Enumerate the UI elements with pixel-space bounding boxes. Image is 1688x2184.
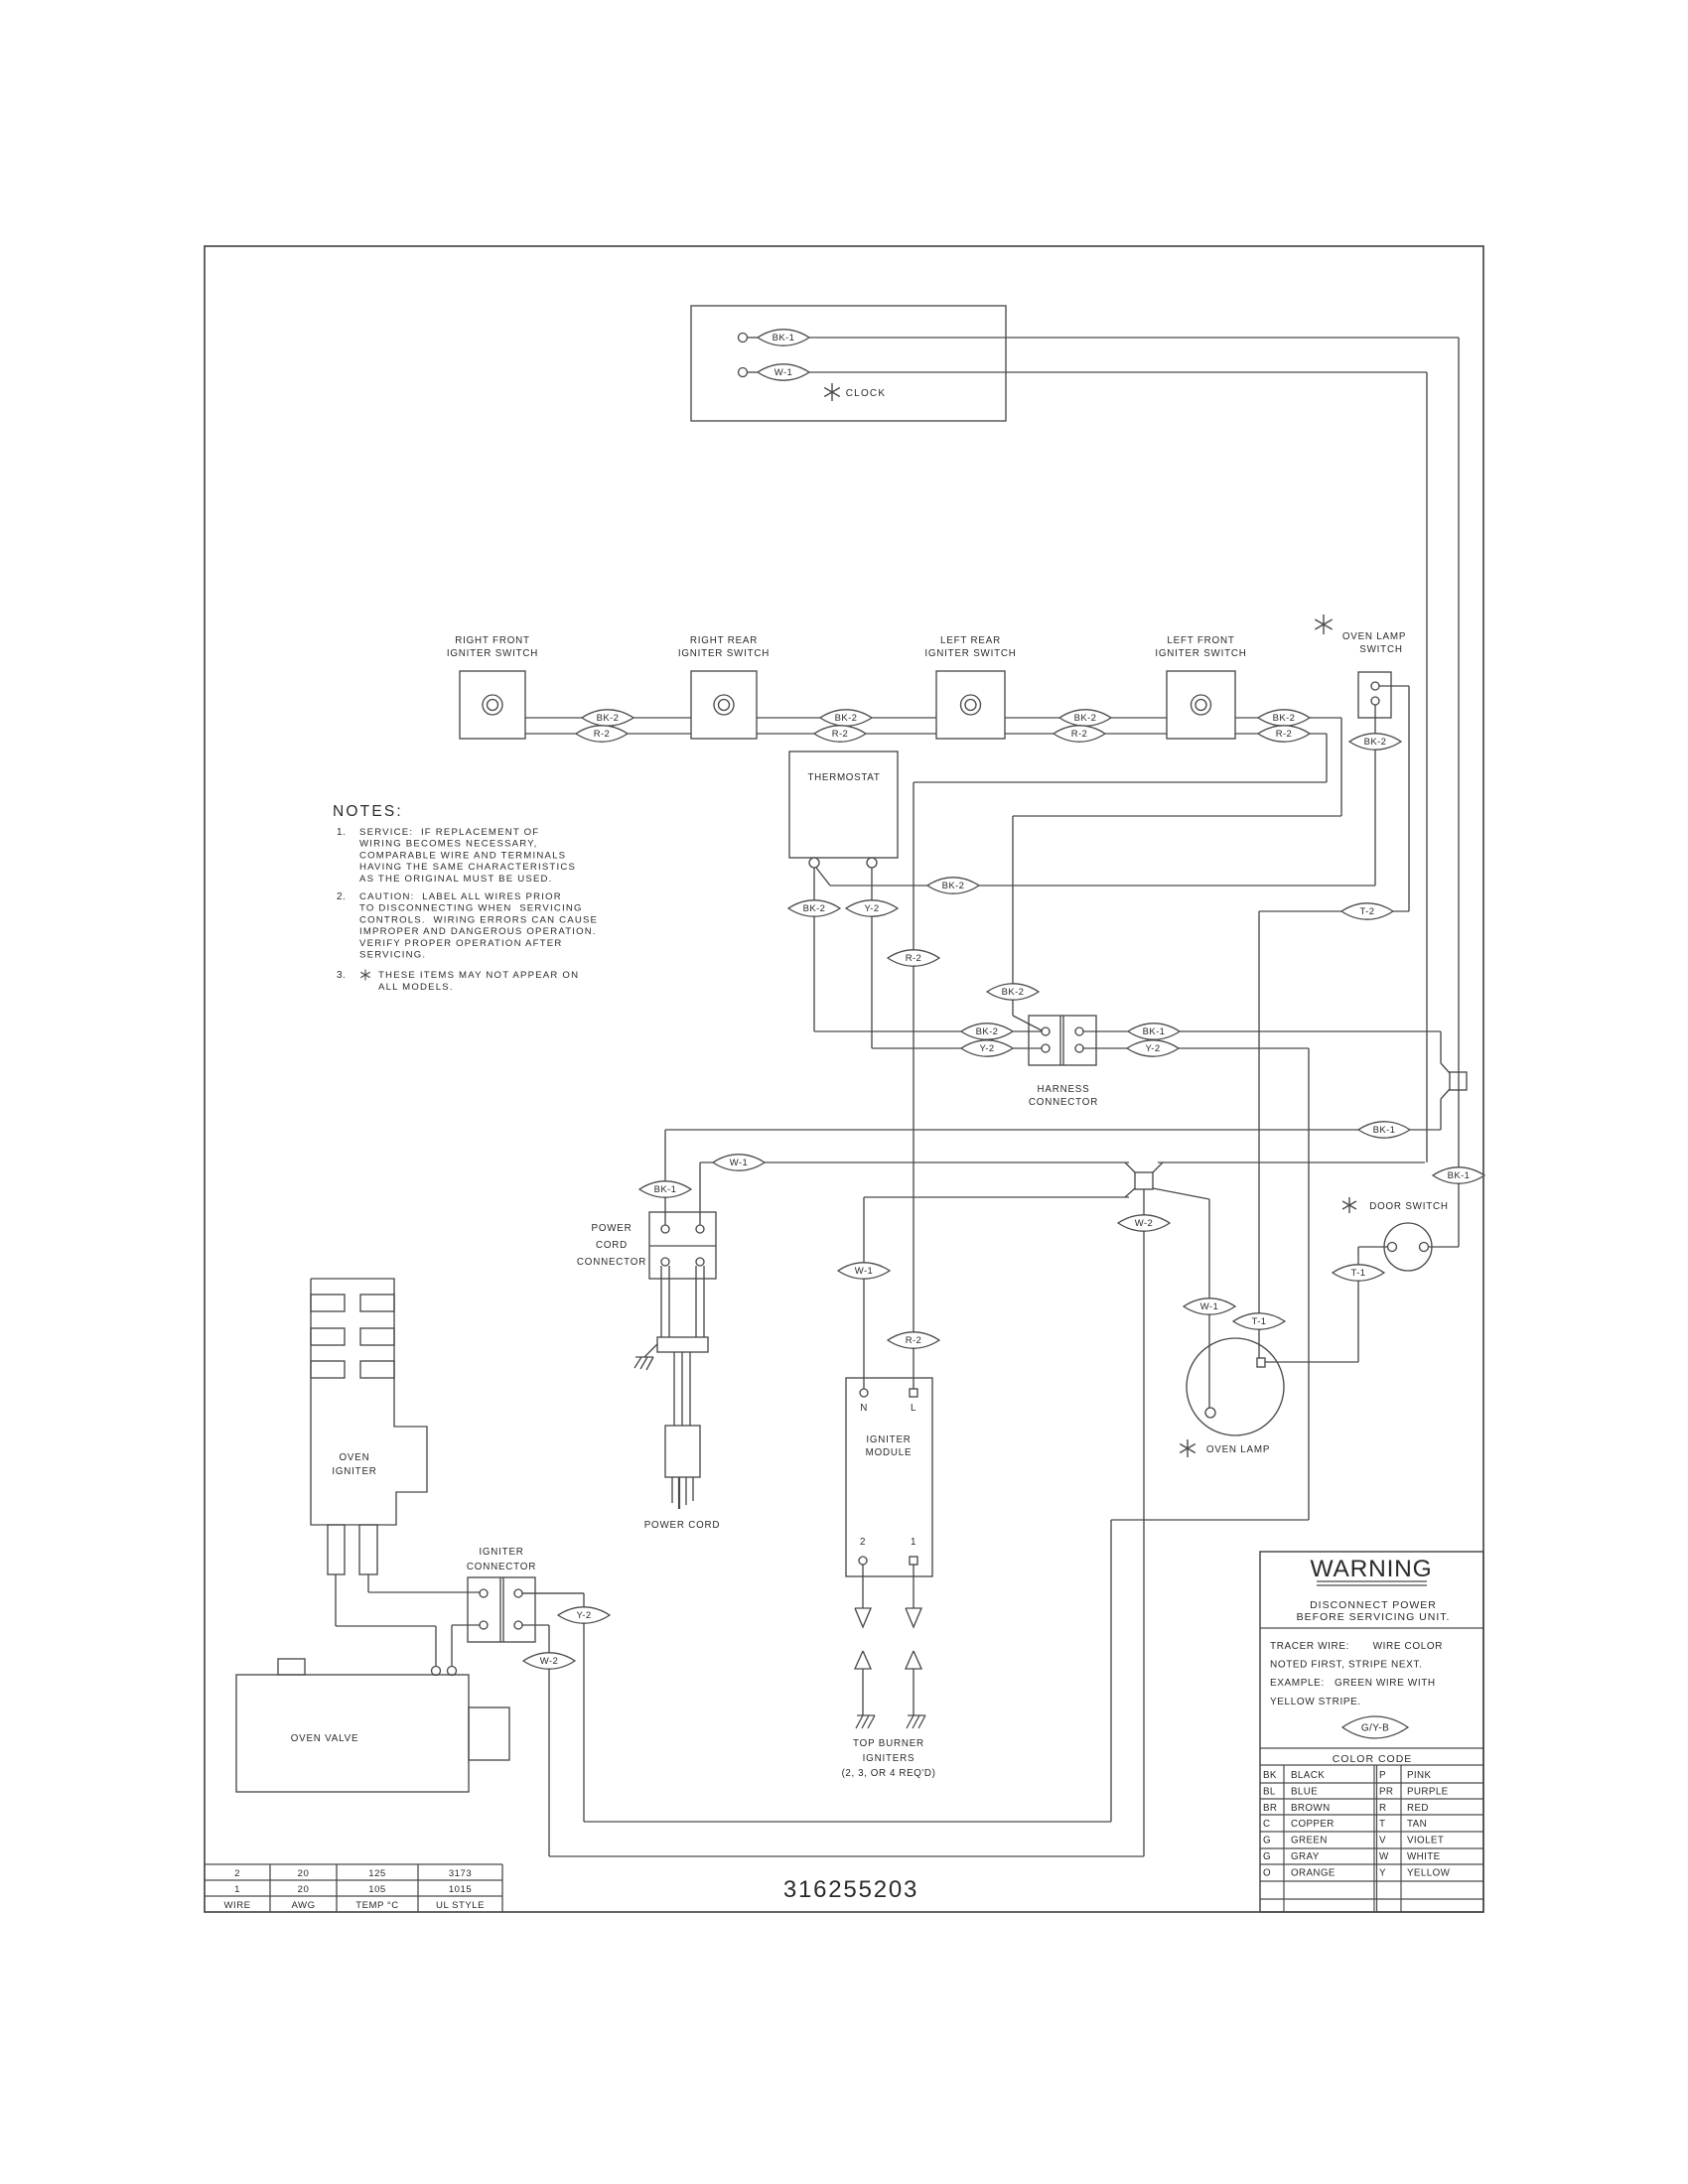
svg-text:HAVING THE SAME CHARACTERISTIC: HAVING THE SAME CHARACTERISTICS bbox=[359, 862, 576, 873]
svg-text:N: N bbox=[860, 1403, 868, 1414]
svg-text:20: 20 bbox=[298, 1884, 310, 1895]
svg-text:R-2: R-2 bbox=[1071, 729, 1088, 740]
svg-text:BK-1: BK-1 bbox=[1448, 1170, 1471, 1181]
svg-text:BROWN: BROWN bbox=[1291, 1803, 1331, 1814]
svg-text:BL: BL bbox=[1263, 1786, 1276, 1797]
svg-text:1.: 1. bbox=[337, 827, 346, 838]
svg-text:RED: RED bbox=[1407, 1803, 1429, 1814]
svg-text:IMPROPER AND DANGEROUS OPERATI: IMPROPER AND DANGEROUS OPERATION. bbox=[359, 926, 597, 937]
svg-text:NOTED FIRST, STRIPE NEXT.: NOTED FIRST, STRIPE NEXT. bbox=[1270, 1660, 1422, 1671]
svg-text:P: P bbox=[1379, 1770, 1386, 1781]
svg-text:IGNITER SWITCH: IGNITER SWITCH bbox=[924, 648, 1016, 659]
svg-text:R-2: R-2 bbox=[594, 729, 611, 740]
svg-text:IGNITER: IGNITER bbox=[479, 1547, 523, 1558]
svg-text:OVEN: OVEN bbox=[340, 1452, 370, 1463]
svg-text:IGNITER: IGNITER bbox=[332, 1466, 376, 1477]
svg-text:T-2: T-2 bbox=[1360, 906, 1375, 917]
svg-text:BK-2: BK-2 bbox=[803, 903, 826, 914]
svg-text:BLUE: BLUE bbox=[1291, 1786, 1318, 1797]
svg-text:ALL MODELS.: ALL MODELS. bbox=[378, 982, 454, 993]
svg-text:125: 125 bbox=[368, 1868, 386, 1879]
svg-text:PURPLE: PURPLE bbox=[1407, 1786, 1449, 1797]
svg-text:COPPER: COPPER bbox=[1291, 1819, 1335, 1830]
svg-text:YELLOW STRIPE.: YELLOW STRIPE. bbox=[1270, 1697, 1361, 1707]
svg-text:IGNITER SWITCH: IGNITER SWITCH bbox=[1155, 648, 1246, 659]
svg-text:VERIFY PROPER OPERATION AFTER: VERIFY PROPER OPERATION AFTER bbox=[359, 938, 563, 949]
svg-text:HARNESS: HARNESS bbox=[1038, 1084, 1090, 1095]
svg-text:T-1: T-1 bbox=[1351, 1268, 1366, 1279]
svg-text:COMPARABLE WIRE AND TERMINALS: COMPARABLE WIRE AND TERMINALS bbox=[359, 850, 566, 861]
svg-text:IGNITERS: IGNITERS bbox=[863, 1753, 915, 1764]
svg-text:AWG: AWG bbox=[291, 1900, 315, 1911]
svg-text:BK-1: BK-1 bbox=[654, 1184, 677, 1195]
svg-text:R-2: R-2 bbox=[832, 729, 849, 740]
svg-text:Y-2: Y-2 bbox=[1145, 1043, 1160, 1054]
svg-text:Y: Y bbox=[1379, 1867, 1386, 1878]
svg-text:Y-2: Y-2 bbox=[979, 1043, 994, 1054]
svg-text:V: V bbox=[1379, 1836, 1386, 1846]
svg-text:BEFORE SERVICING UNIT.: BEFORE SERVICING UNIT. bbox=[1297, 1611, 1451, 1623]
svg-text:THESE ITEMS MAY NOT APPEAR ON: THESE ITEMS MAY NOT APPEAR ON bbox=[378, 970, 579, 981]
svg-text:POWER CORD: POWER CORD bbox=[644, 1520, 721, 1531]
svg-text:DOOR SWITCH: DOOR SWITCH bbox=[1369, 1201, 1449, 1212]
svg-text:R-2: R-2 bbox=[906, 953, 922, 964]
svg-text:WHITE: WHITE bbox=[1407, 1851, 1441, 1862]
svg-text:WARNING: WARNING bbox=[1310, 1556, 1432, 1582]
svg-text:L: L bbox=[911, 1403, 916, 1414]
svg-text:ORANGE: ORANGE bbox=[1291, 1867, 1336, 1878]
svg-text:3173: 3173 bbox=[449, 1868, 472, 1879]
svg-text:R-2: R-2 bbox=[1276, 729, 1293, 740]
svg-text:RIGHT FRONT: RIGHT FRONT bbox=[455, 635, 530, 646]
svg-text:(2, 3, OR 4 REQ'D): (2, 3, OR 4 REQ'D) bbox=[842, 1768, 936, 1779]
svg-text:CONNECTOR: CONNECTOR bbox=[577, 1257, 646, 1268]
svg-text:WIRING BECOMES NECESSARY,: WIRING BECOMES NECESSARY, bbox=[359, 839, 537, 850]
svg-text:GRAY: GRAY bbox=[1291, 1851, 1320, 1862]
svg-text:POWER: POWER bbox=[591, 1223, 632, 1234]
svg-text:CAUTION: LABEL ALL WIRES PRIO: CAUTION: LABEL ALL WIRES PRIOR bbox=[359, 891, 562, 902]
svg-text:SERVICE: IF REPLACEMENT OF: SERVICE: IF REPLACEMENT OF bbox=[359, 827, 539, 838]
svg-text:BK-2: BK-2 bbox=[835, 713, 858, 724]
svg-text:BK-2: BK-2 bbox=[976, 1026, 999, 1037]
svg-text:Y-2: Y-2 bbox=[864, 903, 879, 914]
svg-text:W-1: W-1 bbox=[774, 367, 792, 378]
svg-text:AS THE ORIGINAL MUST BE USED.: AS THE ORIGINAL MUST BE USED. bbox=[359, 874, 553, 885]
svg-text:W-1: W-1 bbox=[1200, 1301, 1218, 1312]
svg-text:1: 1 bbox=[911, 1537, 916, 1548]
svg-text:W: W bbox=[1379, 1851, 1389, 1862]
svg-text:TOP BURNER: TOP BURNER bbox=[853, 1738, 924, 1749]
svg-text:NOTES:: NOTES: bbox=[333, 803, 403, 820]
svg-text:T-1: T-1 bbox=[1252, 1316, 1267, 1327]
svg-text:PINK: PINK bbox=[1407, 1770, 1432, 1781]
svg-text:GREEN: GREEN bbox=[1291, 1836, 1328, 1846]
svg-text:BK-1: BK-1 bbox=[1143, 1026, 1166, 1037]
svg-text:OVEN LAMP: OVEN LAMP bbox=[1206, 1444, 1270, 1455]
svg-text:THERMOSTAT: THERMOSTAT bbox=[807, 772, 880, 783]
svg-text:BR: BR bbox=[1263, 1803, 1277, 1814]
svg-text:LEFT FRONT: LEFT FRONT bbox=[1167, 635, 1234, 646]
svg-text:2: 2 bbox=[860, 1537, 866, 1548]
svg-text:WIRE: WIRE bbox=[223, 1900, 250, 1911]
svg-text:IGNITER: IGNITER bbox=[866, 1434, 911, 1445]
svg-text:105: 105 bbox=[368, 1884, 386, 1895]
svg-text:LEFT REAR: LEFT REAR bbox=[940, 635, 1001, 646]
svg-text:BK-1: BK-1 bbox=[1373, 1125, 1396, 1136]
svg-text:W-2: W-2 bbox=[540, 1656, 558, 1667]
svg-text:BK-2: BK-2 bbox=[597, 713, 620, 724]
svg-text:G/Y-B: G/Y-B bbox=[1361, 1722, 1389, 1733]
svg-text:T: T bbox=[1379, 1819, 1385, 1830]
svg-text:PR: PR bbox=[1379, 1786, 1393, 1797]
svg-text:R: R bbox=[1379, 1803, 1386, 1814]
svg-text:CORD: CORD bbox=[596, 1240, 628, 1251]
svg-text:G: G bbox=[1263, 1851, 1271, 1862]
svg-text:SERVICING.: SERVICING. bbox=[359, 950, 426, 961]
svg-text:20: 20 bbox=[298, 1868, 310, 1879]
svg-text:R-2: R-2 bbox=[906, 1335, 922, 1346]
svg-text:O: O bbox=[1263, 1867, 1271, 1878]
svg-text:CLOCK: CLOCK bbox=[846, 388, 886, 399]
svg-text:DISCONNECT POWER: DISCONNECT POWER bbox=[1310, 1599, 1437, 1611]
svg-text:C: C bbox=[1263, 1819, 1270, 1830]
svg-text:316255203: 316255203 bbox=[783, 1876, 918, 1903]
svg-text:CONNECTOR: CONNECTOR bbox=[467, 1562, 536, 1572]
svg-text:OVEN VALVE: OVEN VALVE bbox=[291, 1733, 359, 1744]
svg-text:SWITCH: SWITCH bbox=[1359, 644, 1402, 655]
svg-text:2: 2 bbox=[234, 1868, 240, 1879]
svg-text:G: G bbox=[1263, 1836, 1271, 1846]
svg-text:BK-1: BK-1 bbox=[773, 333, 795, 343]
svg-text:3.: 3. bbox=[337, 970, 346, 981]
svg-text:TRACER WIRE: WIRE COLOR: TRACER WIRE: WIRE COLOR bbox=[1270, 1641, 1443, 1652]
svg-text:Y-2: Y-2 bbox=[576, 1610, 591, 1621]
svg-text:IGNITER SWITCH: IGNITER SWITCH bbox=[447, 648, 538, 659]
svg-text:VIOLET: VIOLET bbox=[1407, 1836, 1444, 1846]
svg-text:BK-2: BK-2 bbox=[942, 881, 965, 891]
svg-text:UL STYLE: UL STYLE bbox=[436, 1900, 485, 1911]
svg-text:BLACK: BLACK bbox=[1291, 1770, 1325, 1781]
svg-text:CONTROLS. WIRING ERRORS CAN C: CONTROLS. WIRING ERRORS CAN CAUSE bbox=[359, 914, 598, 925]
svg-text:MODULE: MODULE bbox=[866, 1447, 913, 1458]
svg-text:BK-2: BK-2 bbox=[1364, 737, 1387, 748]
svg-text:1: 1 bbox=[234, 1884, 240, 1895]
svg-text:2.: 2. bbox=[337, 891, 346, 902]
svg-text:TO DISCONNECTING WHEN SERVICI: TO DISCONNECTING WHEN SERVICING bbox=[359, 903, 583, 914]
svg-text:EXAMPLE: GREEN WIRE WITH: EXAMPLE: GREEN WIRE WITH bbox=[1270, 1678, 1436, 1689]
svg-text:CONNECTOR: CONNECTOR bbox=[1029, 1097, 1098, 1108]
svg-text:RIGHT REAR: RIGHT REAR bbox=[690, 635, 758, 646]
svg-text:COLOR CODE: COLOR CODE bbox=[1333, 1753, 1413, 1765]
svg-text:W-1: W-1 bbox=[855, 1266, 873, 1277]
svg-text:BK-2: BK-2 bbox=[1273, 713, 1296, 724]
svg-text:TAN: TAN bbox=[1407, 1819, 1427, 1830]
svg-text:W-2: W-2 bbox=[1135, 1218, 1153, 1229]
svg-text:1015: 1015 bbox=[449, 1884, 472, 1895]
svg-text:OVEN LAMP: OVEN LAMP bbox=[1342, 631, 1406, 642]
svg-text:TEMP °C: TEMP °C bbox=[355, 1900, 398, 1911]
svg-text:W-1: W-1 bbox=[730, 1158, 748, 1168]
svg-text:BK-2: BK-2 bbox=[1002, 987, 1025, 998]
svg-text:BK-2: BK-2 bbox=[1074, 713, 1097, 724]
svg-text:BK: BK bbox=[1263, 1770, 1277, 1781]
svg-text:YELLOW: YELLOW bbox=[1407, 1867, 1451, 1878]
svg-text:IGNITER SWITCH: IGNITER SWITCH bbox=[678, 648, 770, 659]
